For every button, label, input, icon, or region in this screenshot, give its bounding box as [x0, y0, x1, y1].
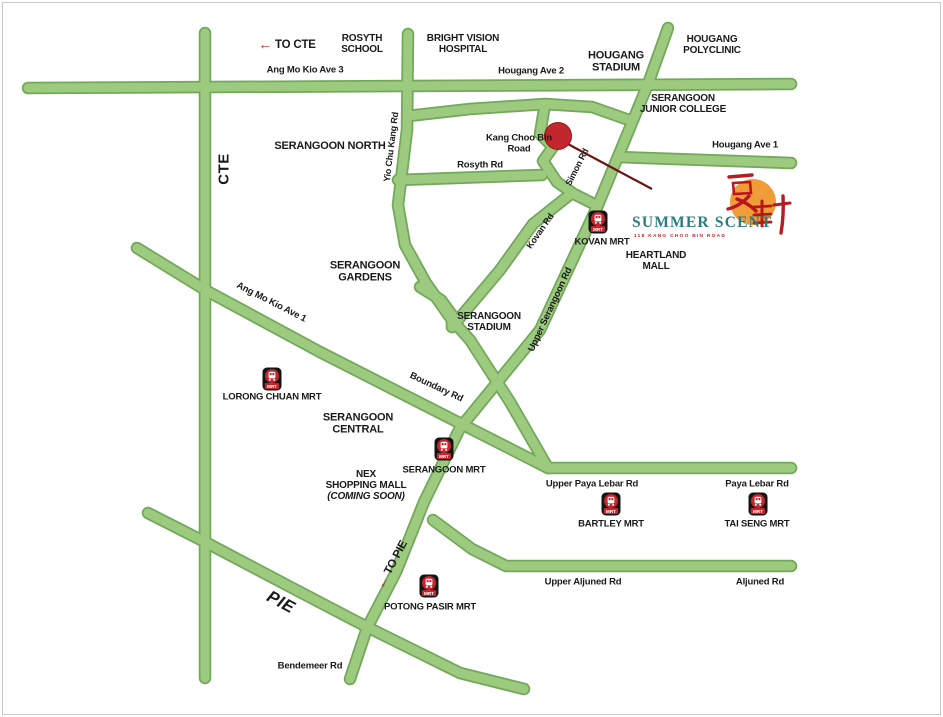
label-nex-shopping-mall-line1: NEX [326, 469, 407, 480]
kovan-mrt-label: KOVAN MRT [574, 238, 629, 249]
label-upper-aljuned-rd-line1: Upper Aljuned Rd [545, 578, 622, 589]
label-serangoon-central-line1: SERANGOON [323, 412, 393, 424]
label-bendemeer-rd-line1: Bendemeer Rd [278, 662, 343, 673]
tai-seng-mrt-label: TAI SENG MRT [725, 520, 790, 531]
label-hougang-ave-2: Hougang Ave 2 [498, 67, 564, 78]
label-rosyth-school: ROSYTHSCHOOL [341, 33, 383, 55]
label-heartland-mall: HEARTLANDMALL [626, 250, 686, 272]
label-serangoon-gardens: SERANGOONGARDENS [330, 260, 400, 285]
lorong-chuan-mrt-label: LORONG CHUAN MRT [223, 393, 322, 404]
label-hougang-ave-1: Hougang Ave 1 [712, 141, 778, 152]
label-nex-shopping-mall: NEXSHOPPING MALL(COMING SOON) [326, 469, 407, 503]
label-serangoon-stadium-line1: SERANGOON [457, 311, 521, 322]
label-rosyth-rd-line1: Rosyth Rd [457, 161, 503, 172]
label-kang-choo-bin-road: Kang Choo BinRoad [486, 133, 552, 154]
serangoon-mrt-icon: MRT [434, 437, 454, 461]
label-hougang-polyclinic-line2: POLYCLINIC [683, 45, 741, 56]
label-nex-shopping-mall-line2: SHOPPING MALL [326, 480, 407, 491]
bartley-mrt-icon: MRT [601, 492, 621, 516]
label-bright-vision-hospital: BRIGHT VISIONHOSPITAL [427, 33, 499, 55]
site-logo-name: SUMMER SCENT [632, 214, 773, 232]
site-logo-tagline: 118 KANG CHOO BIN ROAD [634, 234, 726, 239]
label-serangoon-junior-college-line2: JUNIOR COLLEGE [640, 104, 726, 115]
svg-text:MRT: MRT [606, 509, 616, 514]
label-paya-lebar-rd: Paya Lebar Rd [725, 480, 788, 491]
label-hougang-stadium: HOUGANGSTADIUM [588, 50, 644, 75]
bartley-mrt-label: BARTLEY MRT [578, 520, 644, 531]
location-map: SUMMER SCENT 118 KANG CHOO BIN ROAD ROSY… [0, 0, 943, 717]
label-serangoon-stadium: SERANGOONSTADIUM [457, 311, 521, 333]
label-kang-choo-bin-road-line2: Road [486, 144, 552, 155]
svg-text:MRT: MRT [424, 591, 434, 596]
label-upper-aljuned-rd: Upper Aljuned Rd [545, 578, 622, 589]
label-upper-paya-lebar-rd-line1: Upper Paya Lebar Rd [546, 480, 638, 491]
tai-seng-mrt-icon: MRT [748, 492, 768, 516]
svg-text:MRT: MRT [267, 384, 277, 389]
lorong-chuan-mrt-icon: MRT [262, 367, 282, 391]
label-upper-paya-lebar-rd: Upper Paya Lebar Rd [546, 480, 638, 491]
label-serangoon-junior-college: SERANGOONJUNIOR COLLEGE [640, 93, 726, 115]
label-serangoon-junior-college-line1: SERANGOON [640, 93, 726, 104]
label-paya-lebar-rd-line1: Paya Lebar Rd [725, 480, 788, 491]
label-amk-ave-3-line1: Ang Mo Kio Ave 3 [267, 66, 344, 77]
potong-pasir-mrt-icon: MRT [419, 574, 439, 598]
label-hougang-ave-1-line1: Hougang Ave 1 [712, 141, 778, 152]
label-heartland-mall-line1: HEARTLAND [626, 250, 686, 261]
label-bendemeer-rd: Bendemeer Rd [278, 662, 343, 673]
label-serangoon-stadium-line2: STADIUM [457, 322, 521, 333]
label-amk-ave-3: Ang Mo Kio Ave 3 [267, 66, 344, 77]
label-heartland-mall-line2: MALL [626, 261, 686, 272]
label-hougang-stadium-line2: STADIUM [588, 62, 644, 74]
serangoon-mrt-label: SERANGOON MRT [403, 466, 486, 477]
label-hougang-polyclinic: HOUGANGPOLYCLINIC [683, 34, 741, 56]
label-aljuned-rd: Aljuned Rd [736, 578, 784, 589]
svg-text:MRT: MRT [753, 509, 763, 514]
label-rosyth-school-line1: ROSYTH [341, 33, 383, 44]
label-serangoon-gardens-line1: SERANGOON [330, 260, 400, 272]
svg-text:MRT: MRT [439, 454, 449, 459]
to-cte-label: TO CTE [275, 39, 316, 51]
label-bright-vision-hospital-line2: HOSPITAL [427, 44, 499, 55]
label-serangoon-central-line2: CENTRAL [323, 424, 393, 436]
to-cte-arrow-icon: ← [258, 36, 272, 52]
label-bright-vision-hospital-line1: BRIGHT VISION [427, 33, 499, 44]
label-rosyth-rd: Rosyth Rd [457, 161, 503, 172]
label-serangoon-central: SERANGOONCENTRAL [323, 412, 393, 437]
label-cte: CTE [217, 153, 234, 185]
label-serangoon-north: SERANGOON NORTH [274, 140, 385, 152]
label-rosyth-school-line2: SCHOOL [341, 44, 383, 55]
label-hougang-stadium-line1: HOUGANG [588, 50, 644, 62]
to-cte-direction: ←TO CTE [258, 37, 316, 53]
label-aljuned-rd-line1: Aljuned Rd [736, 578, 784, 589]
label-nex-shopping-mall-line3: (COMING SOON) [326, 492, 407, 503]
kovan-mrt-icon: MRT [588, 210, 608, 234]
svg-text:MRT: MRT [593, 227, 603, 232]
label-cte-line1: CTE [217, 153, 234, 185]
label-serangoon-north-line1: SERANGOON NORTH [274, 140, 385, 152]
label-hougang-ave-2-line1: Hougang Ave 2 [498, 67, 564, 78]
potong-pasir-mrt-label: POTONG PASIR MRT [384, 603, 476, 614]
label-hougang-polyclinic-line1: HOUGANG [683, 34, 741, 45]
label-serangoon-gardens-line2: GARDENS [330, 272, 400, 284]
